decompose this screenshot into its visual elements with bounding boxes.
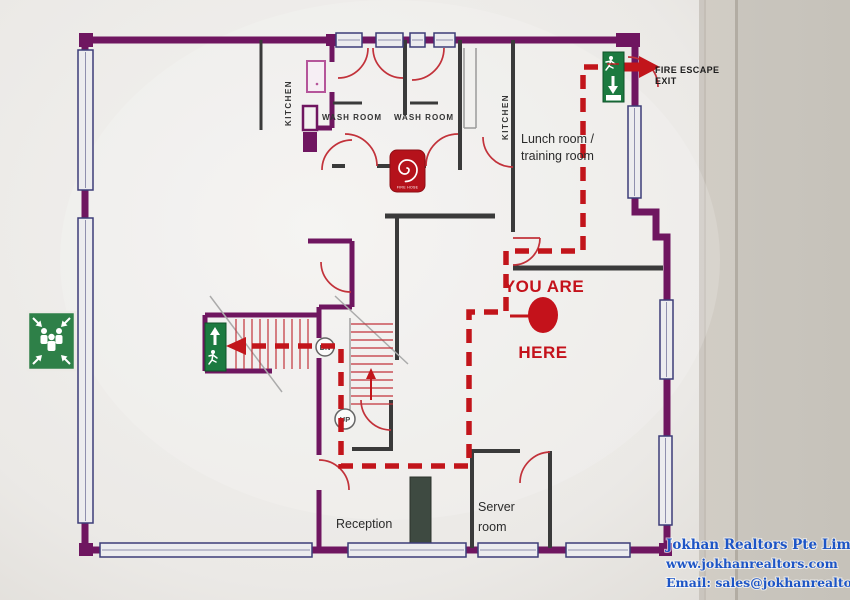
- sign-blank-strip: [606, 95, 621, 101]
- label-fire-escape-1: FIRE ESCAPE: [655, 65, 719, 75]
- wall-corner-line: [735, 0, 738, 600]
- label-lunch-room-2: training room: [521, 149, 594, 163]
- stairs-up-badge: UP: [335, 409, 355, 429]
- watermark: Jokhan Realtors Pte Limited www.jokhanre…: [665, 537, 850, 590]
- here-label: HERE: [518, 343, 567, 362]
- fire-hose-label: FIRE HOSE: [397, 186, 419, 190]
- kitchen-cabinet: [303, 132, 317, 152]
- exit-sign-top-icon: [603, 52, 624, 102]
- label-server-2: room: [478, 520, 506, 534]
- label-reception: Reception: [336, 517, 392, 531]
- assembly-point-icon: [28, 312, 75, 370]
- sink-drain: [316, 83, 319, 86]
- label-kitchen-left: KITCHEN: [284, 80, 293, 126]
- kitchen-sink: [307, 61, 325, 92]
- watermark-company: Jokhan Realtors Pte Limited: [665, 537, 850, 553]
- label-kitchen-right: KITCHEN: [501, 94, 510, 140]
- exit-sign-stairs-icon: [205, 323, 226, 371]
- fire-hose-icon: FIRE HOSE: [390, 150, 425, 192]
- label-fire-escape-2: EXIT: [655, 76, 677, 86]
- label-server-1: Server: [478, 500, 515, 514]
- you-are-label: YOU ARE: [504, 277, 584, 296]
- watermark-email: Email: sales@jokhanrealtors.com: [666, 575, 850, 590]
- watermark-website: www.jokhanrealtors.com: [665, 556, 838, 571]
- label-washroom-1: WASH ROOM: [322, 113, 382, 122]
- floor-plan-canvas: DN UP YOU ARE HERE: [0, 0, 850, 600]
- label-washroom-2: WASH ROOM: [394, 113, 454, 122]
- label-lunch-room-1: Lunch room /: [521, 132, 594, 146]
- photo-of-evacuation-plan: DN UP YOU ARE HERE: [0, 0, 850, 600]
- you-are-here-dot: [528, 297, 558, 333]
- reception-desk: [410, 477, 431, 543]
- wall-right-strip: [738, 0, 850, 600]
